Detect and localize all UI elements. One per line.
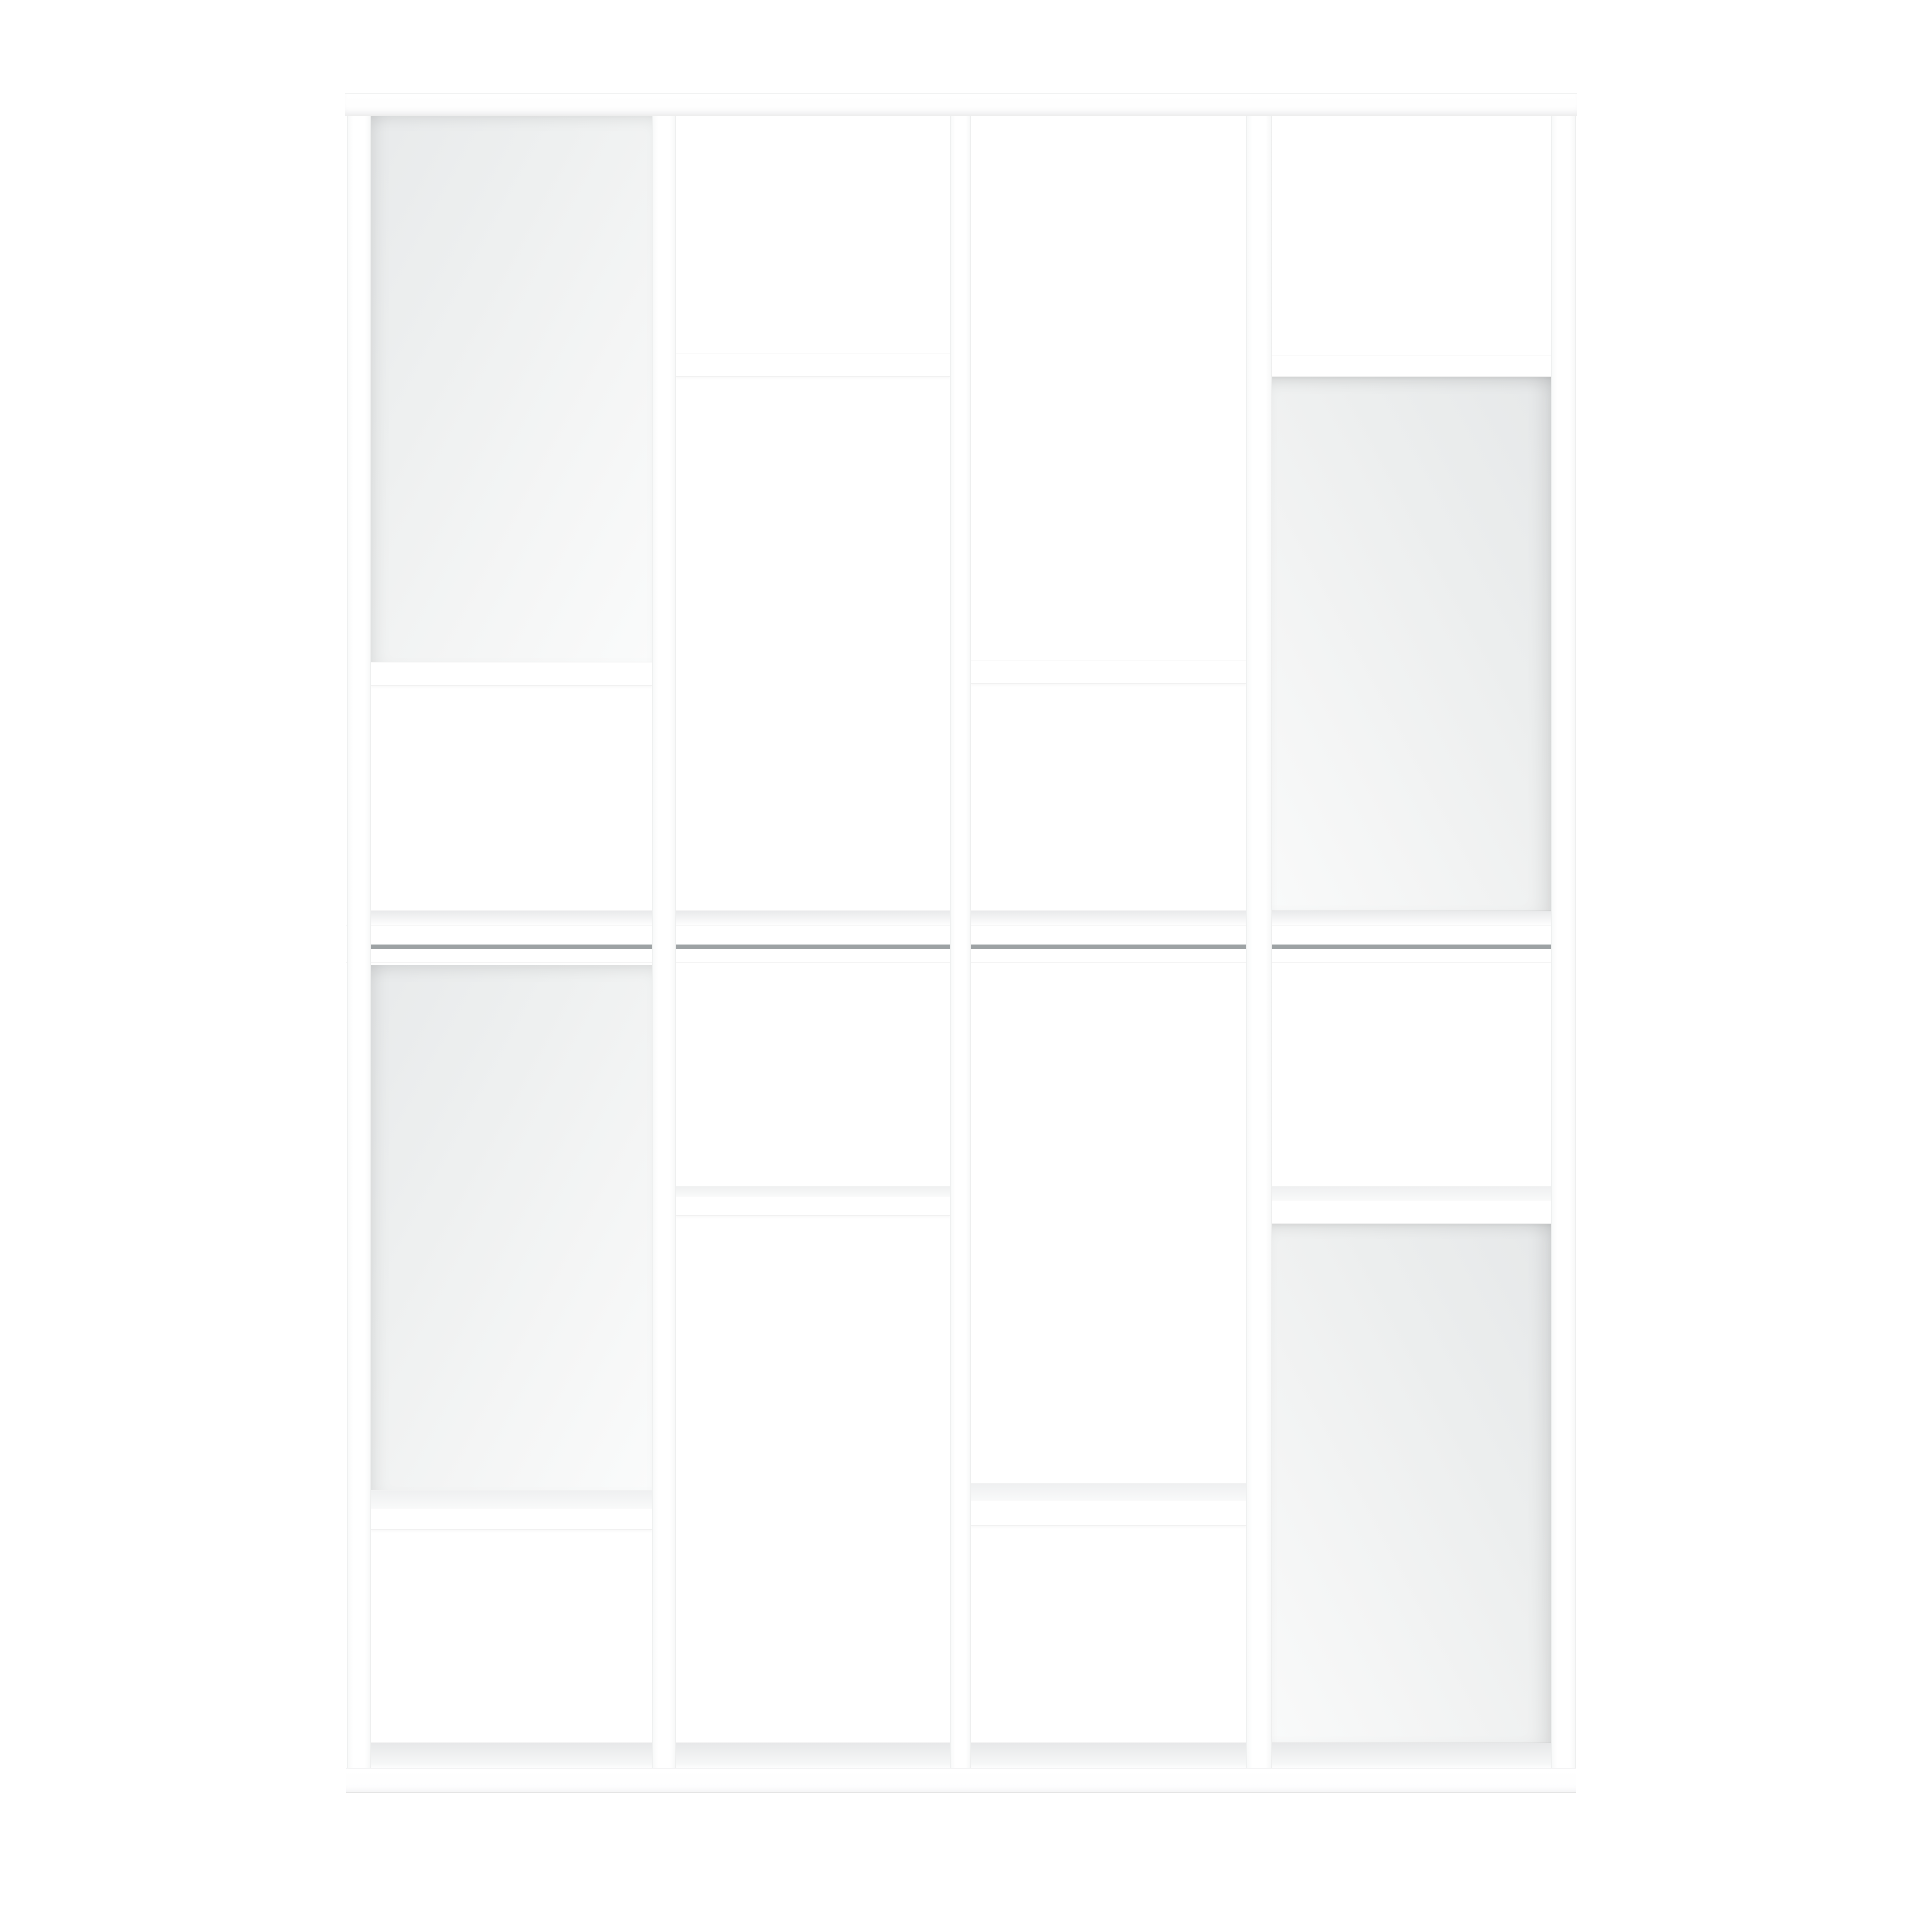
right-upright: [1551, 114, 1576, 1768]
shelf-bottom-col4-top-surface: [1272, 1186, 1551, 1201]
bookcase: [0, 0, 1920, 1920]
bottom-floor-wedge-column-4: [1272, 1742, 1551, 1769]
left-upright: [347, 114, 371, 1768]
bottom-floor-wedge-column-1: [371, 1742, 652, 1769]
product-photo: [0, 0, 1920, 1920]
stack-seam-column-3: [971, 944, 1246, 949]
shelf-top-col4: [1272, 355, 1551, 377]
divider-1: [652, 114, 676, 1768]
shelf-bottom-col2: [676, 1196, 950, 1216]
shelf-bottom-col3-top-surface: [971, 1483, 1246, 1501]
bottom-floor-wedge-column-3: [971, 1742, 1246, 1769]
stack-seam-column-4: [1272, 944, 1551, 949]
mid-floor-wedge-column-2: [676, 910, 950, 926]
shelf-top-col1: [371, 662, 652, 686]
shelf-bottom-col1: [371, 1508, 652, 1530]
shelf-bottom-col3: [971, 1500, 1246, 1526]
back-panel-bottom-left: [371, 965, 652, 1491]
mid-floor-wedge-column-3: [971, 910, 1246, 926]
back-panel-top-right: [1272, 377, 1551, 912]
mid-floor-wedge-column-4: [1272, 910, 1551, 926]
bottom-floor-wedge-column-2: [676, 1742, 950, 1769]
mid-floor-wedge-column-1: [371, 910, 652, 926]
back-panel-bottom-right: [1272, 1222, 1551, 1743]
stack-seam-column-2: [676, 944, 950, 949]
divider-2: [950, 114, 971, 1768]
bottom-board: [346, 1768, 1576, 1793]
top-board: [345, 93, 1577, 116]
shelf-bottom-col4: [1272, 1200, 1551, 1224]
shelf-top-col3: [971, 660, 1246, 684]
stack-seam-column-1: [371, 944, 652, 949]
shelf-bottom-col1-top-surface: [371, 1490, 652, 1509]
shelf-top-col2: [676, 353, 950, 377]
back-panel-top-left: [371, 114, 652, 662]
divider-3: [1246, 114, 1272, 1768]
